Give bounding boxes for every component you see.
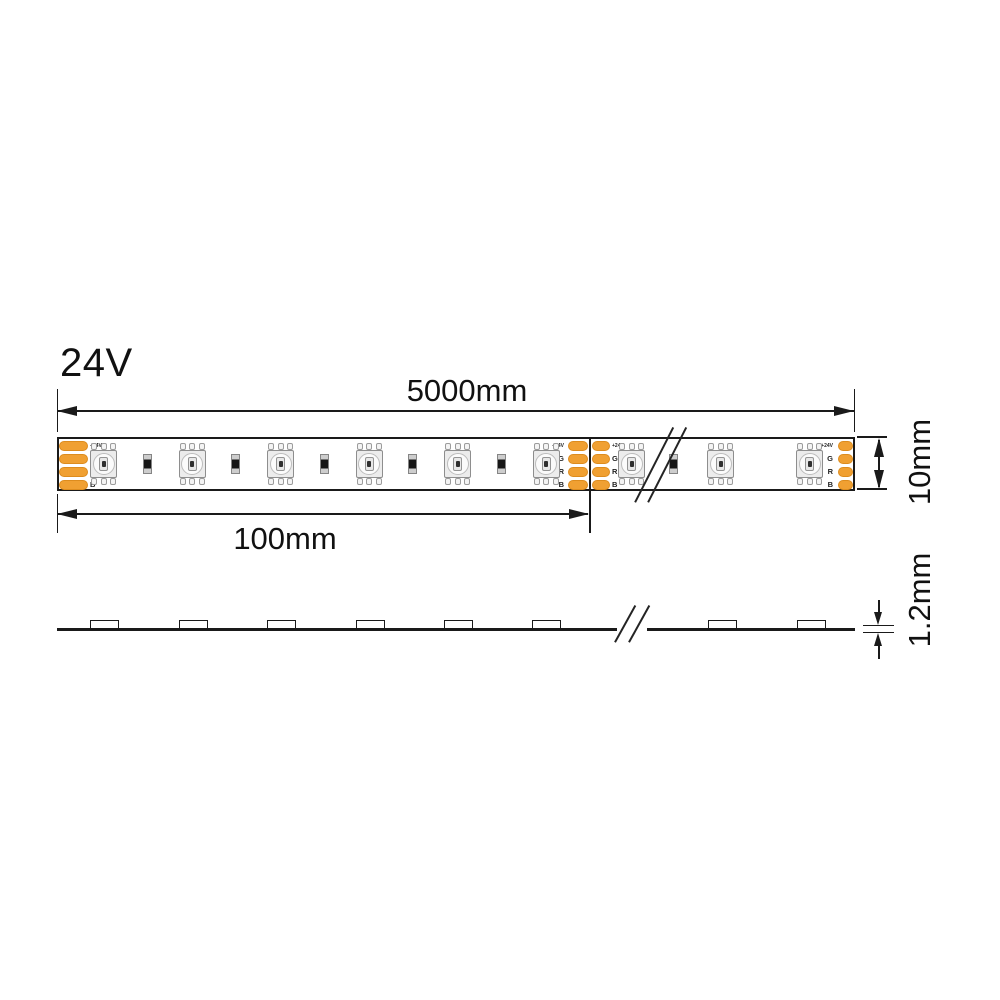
led-die-dot bbox=[456, 461, 460, 467]
strip-top-view: +24VGRB+24VGRB+24VGRB+24VGRB bbox=[57, 437, 855, 491]
led-pin bbox=[366, 443, 372, 450]
led-pin bbox=[797, 443, 803, 450]
resistor bbox=[231, 454, 240, 474]
solder-pad bbox=[592, 441, 610, 451]
led-pin bbox=[619, 478, 625, 485]
led-die-dot bbox=[279, 461, 283, 467]
led-die-dot bbox=[808, 461, 812, 467]
led-pin bbox=[91, 443, 97, 450]
solder-pad bbox=[59, 441, 88, 451]
led-pin bbox=[464, 478, 470, 485]
side-view-led bbox=[444, 620, 473, 629]
solder-pad bbox=[592, 454, 610, 464]
resistor bbox=[143, 454, 152, 474]
led-pin bbox=[619, 443, 625, 450]
led-die-dot bbox=[102, 461, 106, 467]
led-package bbox=[356, 443, 383, 485]
dim-thickness-arrow-up-icon bbox=[874, 633, 882, 646]
led-package bbox=[444, 443, 471, 485]
led-die-dot bbox=[630, 461, 634, 467]
side-view-led bbox=[797, 620, 826, 629]
resistor bbox=[497, 454, 506, 474]
led-strip-dimension-drawing: 24V 5000mm +24VGRB+24VGRB+24VGRB+24VGRB … bbox=[0, 0, 1000, 1000]
led-pin bbox=[110, 478, 116, 485]
dim-cut-line bbox=[58, 513, 588, 515]
led-die-dot bbox=[367, 461, 371, 467]
led-die-dot bbox=[719, 461, 723, 467]
led-pin bbox=[101, 478, 107, 485]
led-package bbox=[267, 443, 294, 485]
led-package bbox=[90, 443, 117, 485]
led-die-dot bbox=[544, 461, 548, 467]
led-pin bbox=[638, 443, 644, 450]
dim-thickness-arrow-down-icon bbox=[874, 612, 882, 625]
led-pin bbox=[708, 443, 714, 450]
led-package bbox=[707, 443, 734, 485]
dim-total-arrow-right-icon bbox=[834, 406, 854, 416]
led-pin bbox=[189, 478, 195, 485]
dim-width-arrow-down-icon bbox=[874, 470, 884, 489]
side-view-led bbox=[267, 620, 296, 629]
led-pin bbox=[101, 443, 107, 450]
led-pin bbox=[727, 443, 733, 450]
side-view-led bbox=[708, 620, 737, 629]
led-pin bbox=[807, 443, 813, 450]
solder-pad bbox=[568, 467, 588, 477]
led-pin bbox=[180, 443, 186, 450]
dim-total-length-label: 5000mm bbox=[387, 373, 547, 409]
led-pin bbox=[543, 443, 549, 450]
side-view-led bbox=[179, 620, 208, 629]
led-package bbox=[618, 443, 645, 485]
led-package bbox=[533, 443, 560, 485]
solder-pad bbox=[568, 441, 588, 451]
solder-pad bbox=[568, 454, 588, 464]
solder-pad bbox=[838, 467, 853, 477]
led-package bbox=[179, 443, 206, 485]
led-pin bbox=[180, 478, 186, 485]
side-view-led bbox=[90, 620, 119, 629]
led-pin bbox=[553, 443, 559, 450]
led-die-dot bbox=[190, 461, 194, 467]
led-pin bbox=[534, 443, 540, 450]
side-view-led bbox=[532, 620, 561, 629]
led-pin bbox=[455, 443, 461, 450]
solder-pad bbox=[59, 454, 88, 464]
led-pin bbox=[376, 443, 382, 450]
led-pin bbox=[727, 478, 733, 485]
side-view-led bbox=[356, 620, 385, 629]
led-pin bbox=[189, 443, 195, 450]
led-pin bbox=[110, 443, 116, 450]
dim-thickness-label: 1.2mm bbox=[904, 525, 936, 675]
dim-cut-length-label: 100mm bbox=[205, 521, 365, 557]
solder-pad bbox=[838, 480, 853, 490]
led-pin bbox=[91, 478, 97, 485]
solder-pad bbox=[59, 467, 88, 477]
led-pin bbox=[464, 443, 470, 450]
led-pin bbox=[199, 478, 205, 485]
led-pin bbox=[553, 478, 559, 485]
led-pin bbox=[445, 443, 451, 450]
led-pin bbox=[357, 443, 363, 450]
dim-total-line bbox=[58, 410, 854, 412]
dim-thickness-stem-bottom bbox=[878, 646, 880, 659]
led-pin bbox=[357, 478, 363, 485]
dim-cut-arrow-left-icon bbox=[57, 509, 77, 519]
cut-line bbox=[589, 437, 591, 533]
resistor bbox=[320, 454, 329, 474]
led-pin bbox=[629, 478, 635, 485]
led-pin bbox=[629, 443, 635, 450]
led-pin bbox=[366, 478, 372, 485]
led-pin bbox=[718, 443, 724, 450]
dim-width-label: 10mm bbox=[904, 387, 936, 537]
led-pin bbox=[807, 478, 813, 485]
solder-pad bbox=[592, 467, 610, 477]
dim-total-arrow-left-icon bbox=[57, 406, 77, 416]
break-mark-side-view bbox=[614, 605, 636, 643]
led-pin bbox=[816, 478, 822, 485]
led-pin bbox=[268, 478, 274, 485]
dim-width-arrow-up-icon bbox=[874, 438, 884, 457]
led-pin bbox=[376, 478, 382, 485]
led-pin bbox=[455, 478, 461, 485]
solder-pad bbox=[838, 454, 853, 464]
led-pin bbox=[278, 478, 284, 485]
led-pin bbox=[797, 478, 803, 485]
led-pin bbox=[708, 478, 714, 485]
led-pin bbox=[534, 478, 540, 485]
led-pin bbox=[278, 443, 284, 450]
led-pin bbox=[445, 478, 451, 485]
solder-pad bbox=[838, 441, 853, 451]
solder-pad bbox=[59, 480, 88, 490]
led-pin bbox=[287, 443, 293, 450]
led-pin bbox=[816, 443, 822, 450]
led-pin bbox=[199, 443, 205, 450]
resistor bbox=[408, 454, 417, 474]
led-pin bbox=[543, 478, 549, 485]
voltage-label: 24V bbox=[60, 341, 133, 386]
solder-pad bbox=[592, 480, 610, 490]
led-pin bbox=[268, 443, 274, 450]
led-pin bbox=[718, 478, 724, 485]
led-pin bbox=[287, 478, 293, 485]
dim-cut-arrow-right-icon bbox=[569, 509, 589, 519]
led-package bbox=[796, 443, 823, 485]
solder-pad bbox=[568, 480, 588, 490]
